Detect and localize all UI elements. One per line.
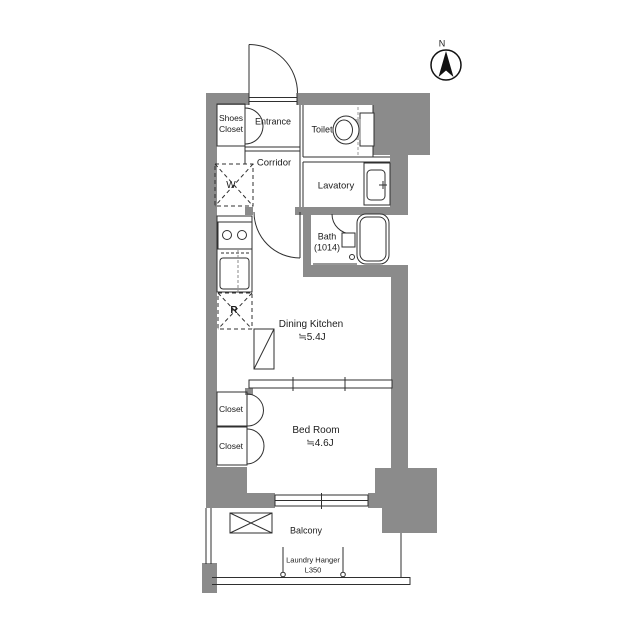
toilet-icon [333,113,374,146]
closet-doors-icon [247,394,264,464]
refrigerator-label: R [230,306,237,316]
washbasin-icon [364,163,390,205]
corridor-label: Corridor [257,158,291,168]
entrance-door-swing-icon [249,45,298,106]
bathtub-icon [357,214,389,264]
dining-kitchen-size: ≒5.4J [298,333,325,343]
shoes-closet-label-1: Shoes [219,114,243,123]
shoes-closet-label-2: Closet [219,125,243,134]
balcony-railing [212,577,410,585]
laundry-hanger-size: L350 [305,566,322,574]
dining-kitchen-label: Dining Kitchen [279,320,343,330]
bath-size-label: (1014) [314,244,340,253]
kitchen-sink-icon [220,258,249,289]
bed-room-size: ≒4.6J [306,439,333,449]
entrance-label: Entrance [255,118,291,127]
window [275,493,368,509]
bed-room-label: Bed Room [292,426,339,436]
compass-north-icon [431,50,461,80]
equipment-box-icon [230,513,272,533]
laundry-hanger-label: Laundry Hanger [286,556,340,564]
floor-plan: N Shoes Closet Entrance Toilet Corridor … [0,0,640,640]
toilet-label: Toilet [311,126,332,135]
kitchen-counter [217,216,252,294]
balcony-label: Balcony [290,527,322,536]
closet-upper-label: Closet [219,405,243,414]
sliding-partition [249,377,392,391]
walls [202,93,437,593]
washer-label: W [226,181,235,191]
counter-unit [254,329,274,369]
closet-lower-label: Closet [219,442,243,451]
compass-n-label: N [439,40,446,49]
corridor-door-swing-icon [254,212,300,258]
lavatory-label: Lavatory [318,181,354,191]
bath-label: Bath [318,233,337,242]
stove-icon [218,222,252,249]
